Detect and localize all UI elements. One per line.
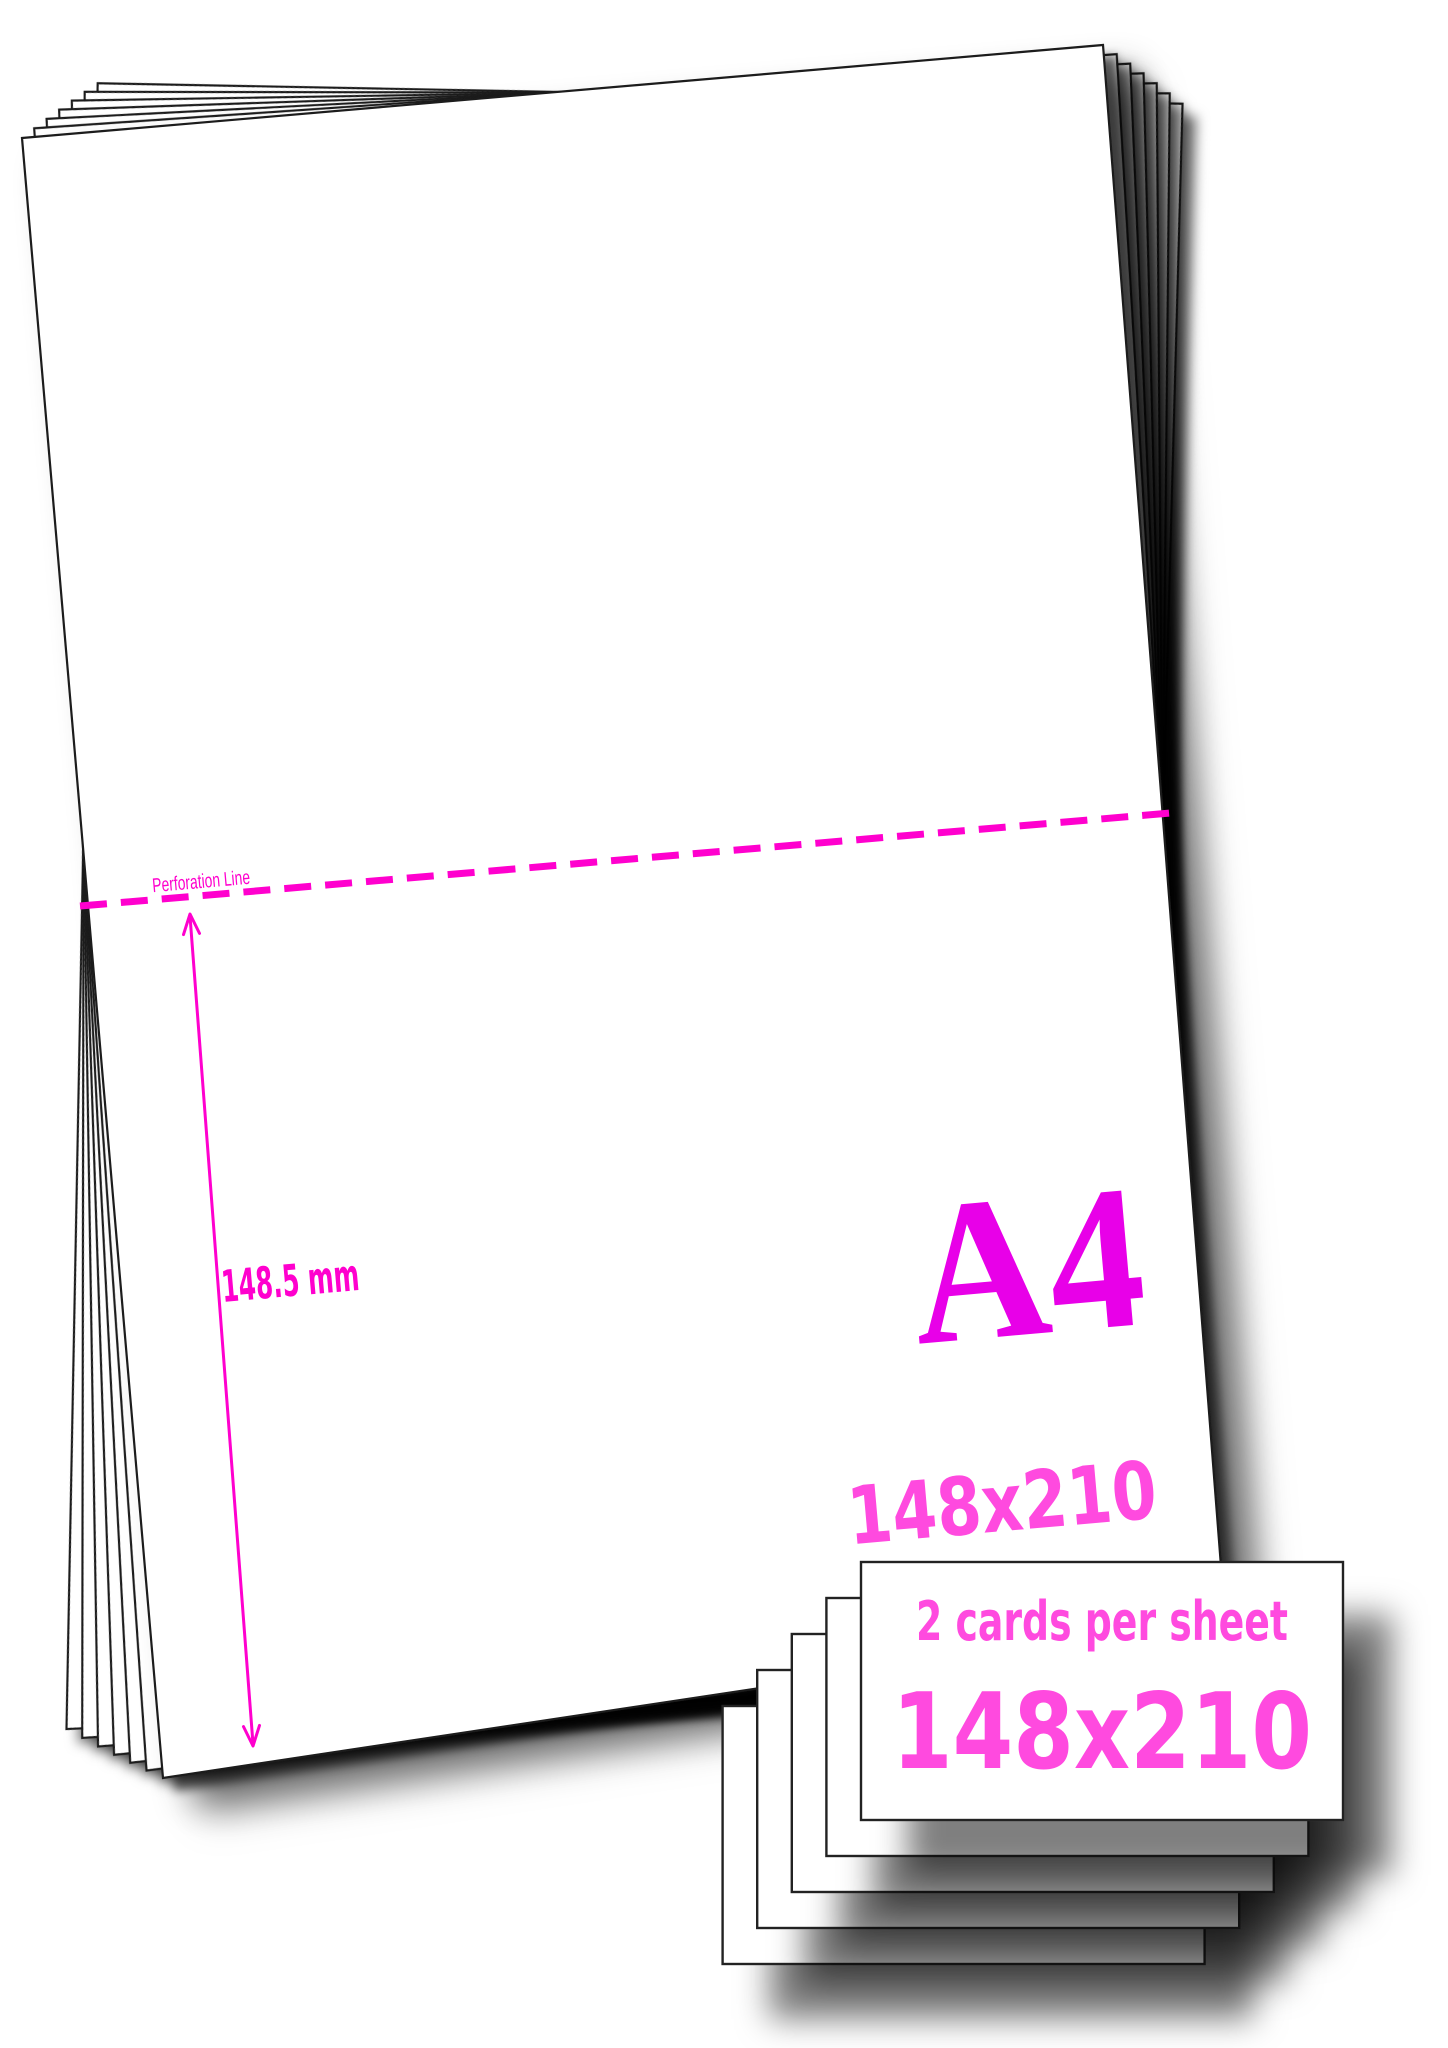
cards-per-sheet-label: 2 cards per sheet: [916, 1590, 1288, 1653]
product-illustration: Perforation Line 148.5 mm A4 148x210 2 c…: [0, 0, 1448, 2048]
sheet-format-label: A4: [902, 1142, 1153, 1388]
perforated-sheet-diagram: Perforation Line 148.5 mm A4 148x210 2 c…: [0, 0, 1448, 2048]
card-dimensions-label: 148x210: [892, 1671, 1312, 1793]
